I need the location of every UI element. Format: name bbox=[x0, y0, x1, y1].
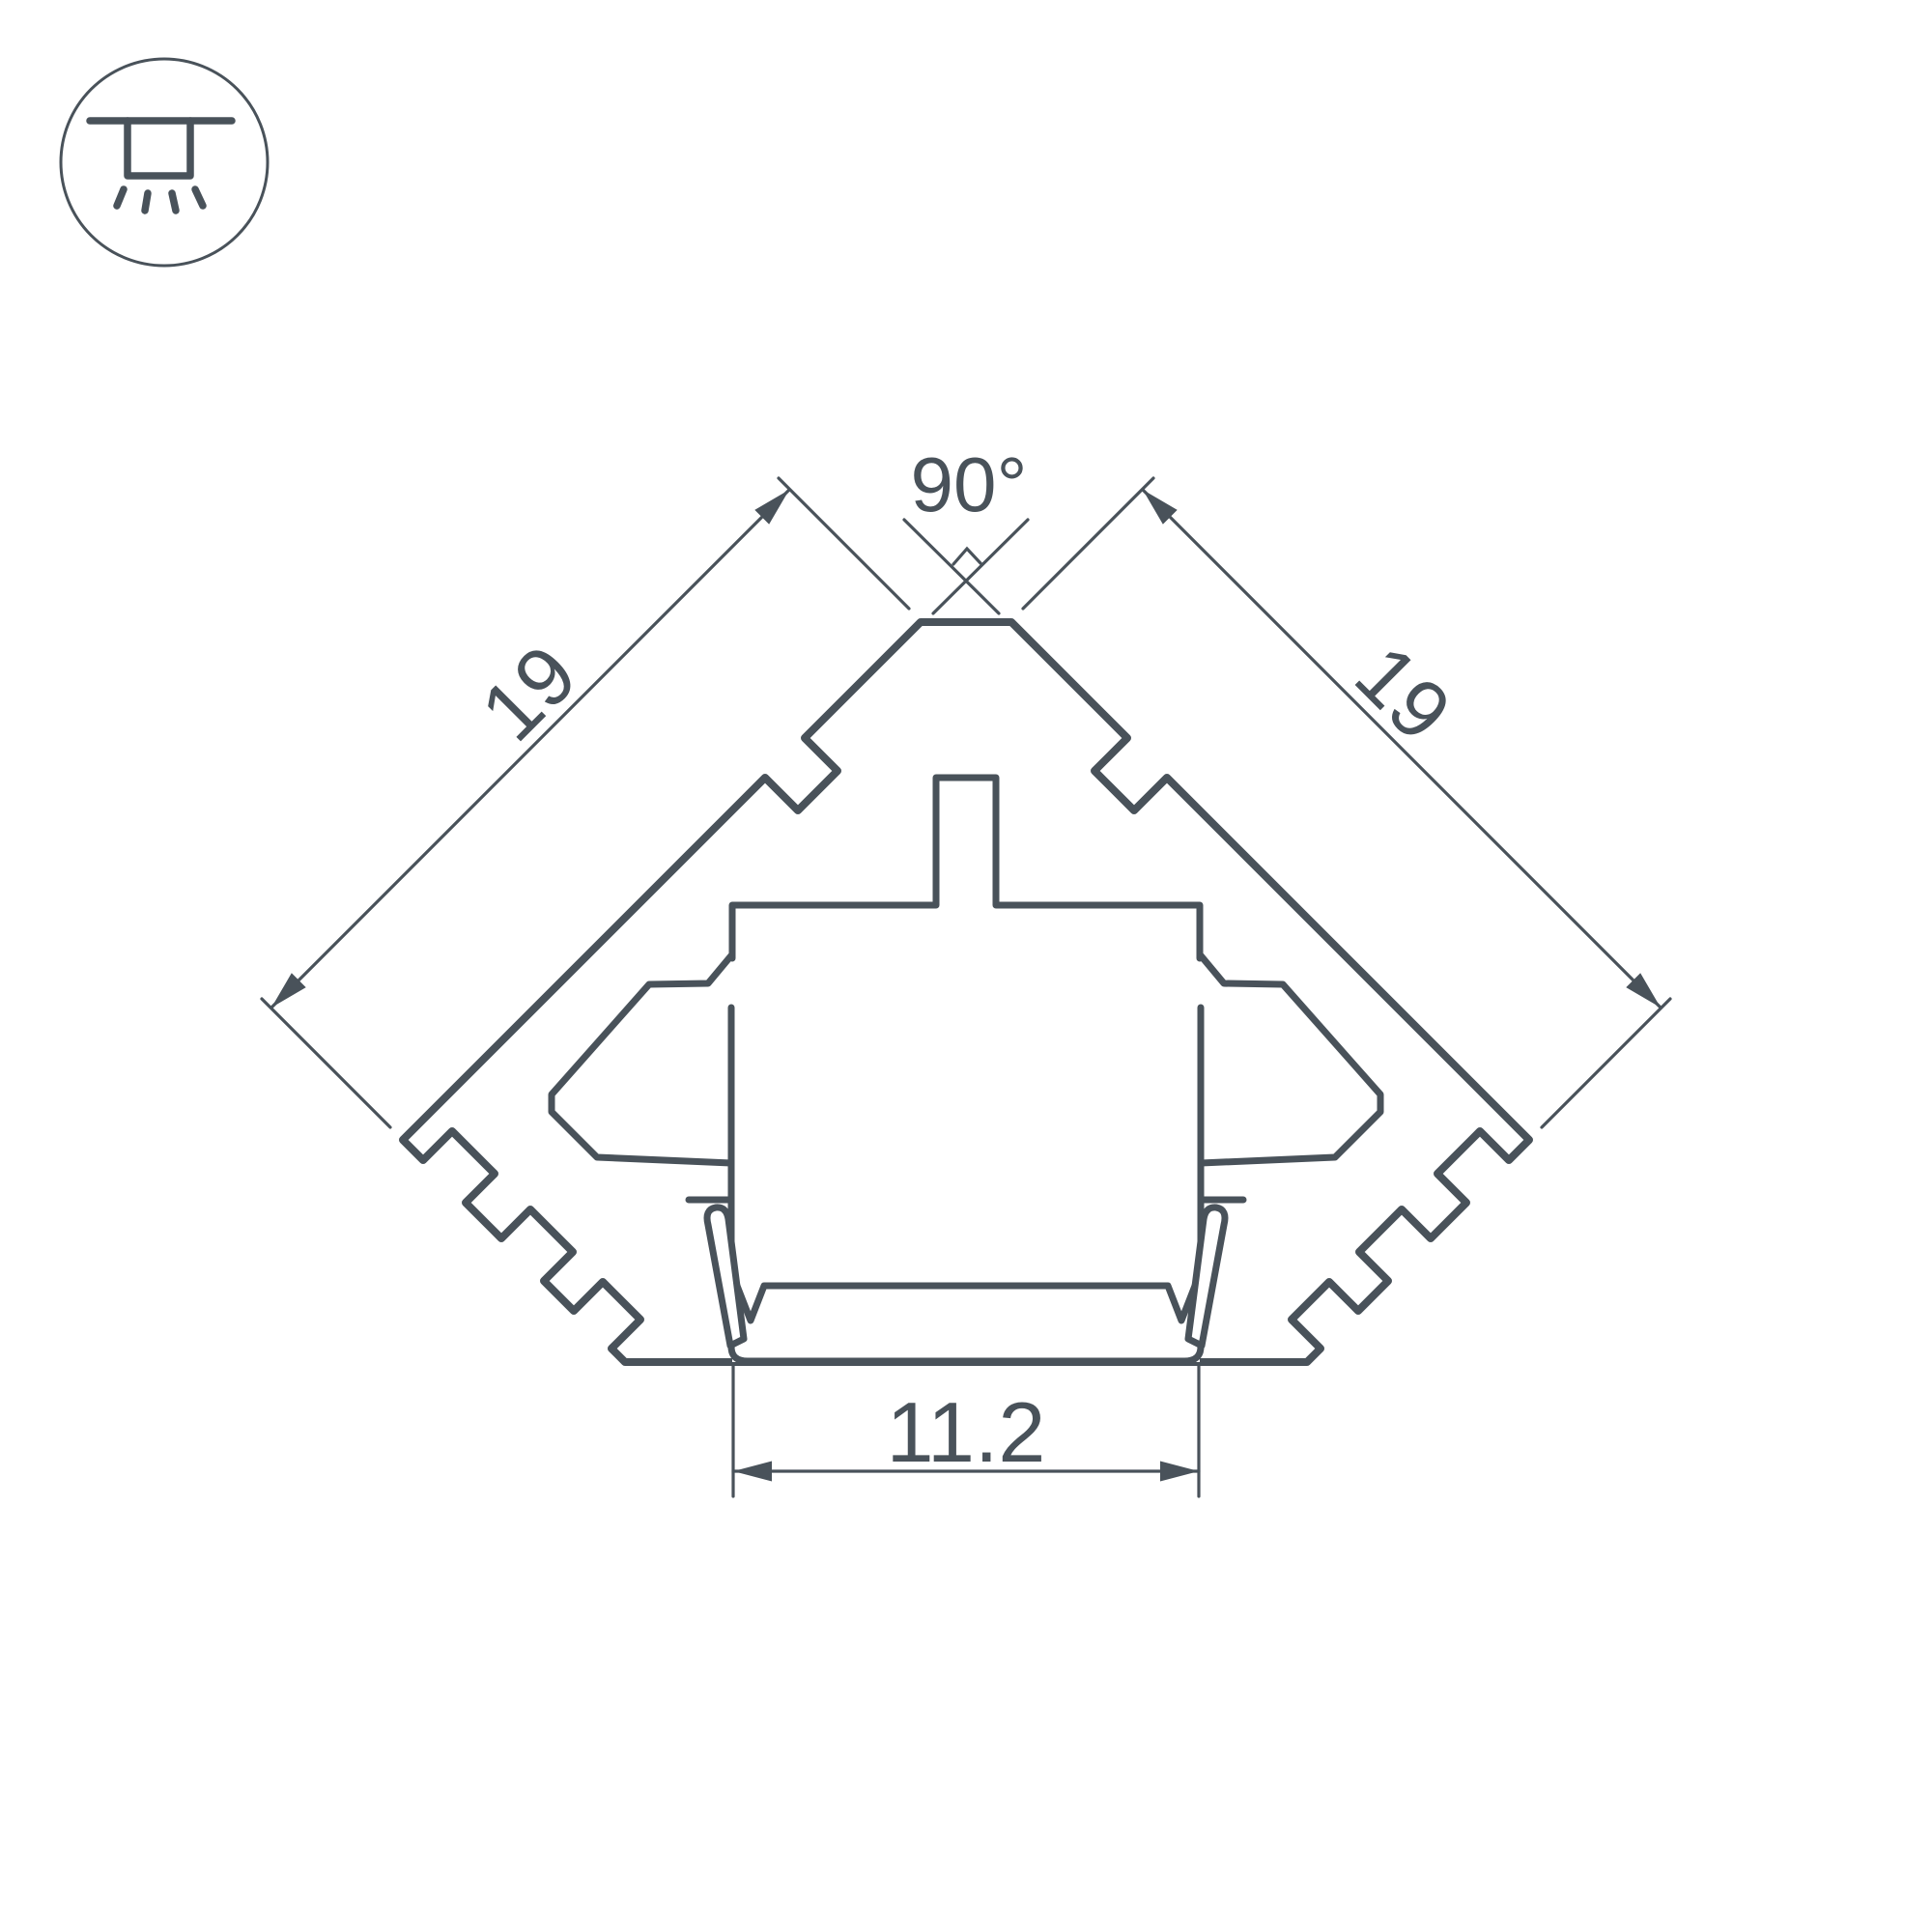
icon-light-rays bbox=[117, 189, 203, 211]
corner-profile-cross-section-drawing: 19 19 90° 11.2 bbox=[0, 0, 1932, 1932]
extension-line bbox=[779, 478, 909, 609]
width-label: 11.2 bbox=[887, 1384, 1046, 1480]
icon-circle bbox=[61, 59, 268, 266]
angle-leg-line bbox=[904, 520, 999, 613]
angle-label: 90° bbox=[911, 441, 1028, 527]
dimension-apex-angle: 90° bbox=[904, 441, 1028, 613]
dim-right-label: 19 bbox=[1338, 628, 1469, 759]
extension-line bbox=[1023, 478, 1153, 609]
right-angle-marker bbox=[953, 549, 980, 564]
icon-fixture-box bbox=[128, 121, 190, 176]
extension-line bbox=[262, 999, 390, 1127]
channel-cavity bbox=[732, 905, 1200, 1362]
profile-drawing-page: 19 19 90° 11.2 bbox=[0, 0, 1932, 1932]
profile-body bbox=[403, 622, 1529, 1362]
extension-line bbox=[1542, 999, 1670, 1127]
recessed-ceiling-light-icon bbox=[61, 59, 268, 266]
dimension-inner-width: 11.2 bbox=[733, 1365, 1199, 1496]
top-slot-cavity bbox=[936, 780, 996, 913]
dim-left-label: 19 bbox=[464, 628, 595, 759]
angle-leg-line bbox=[933, 520, 1028, 613]
